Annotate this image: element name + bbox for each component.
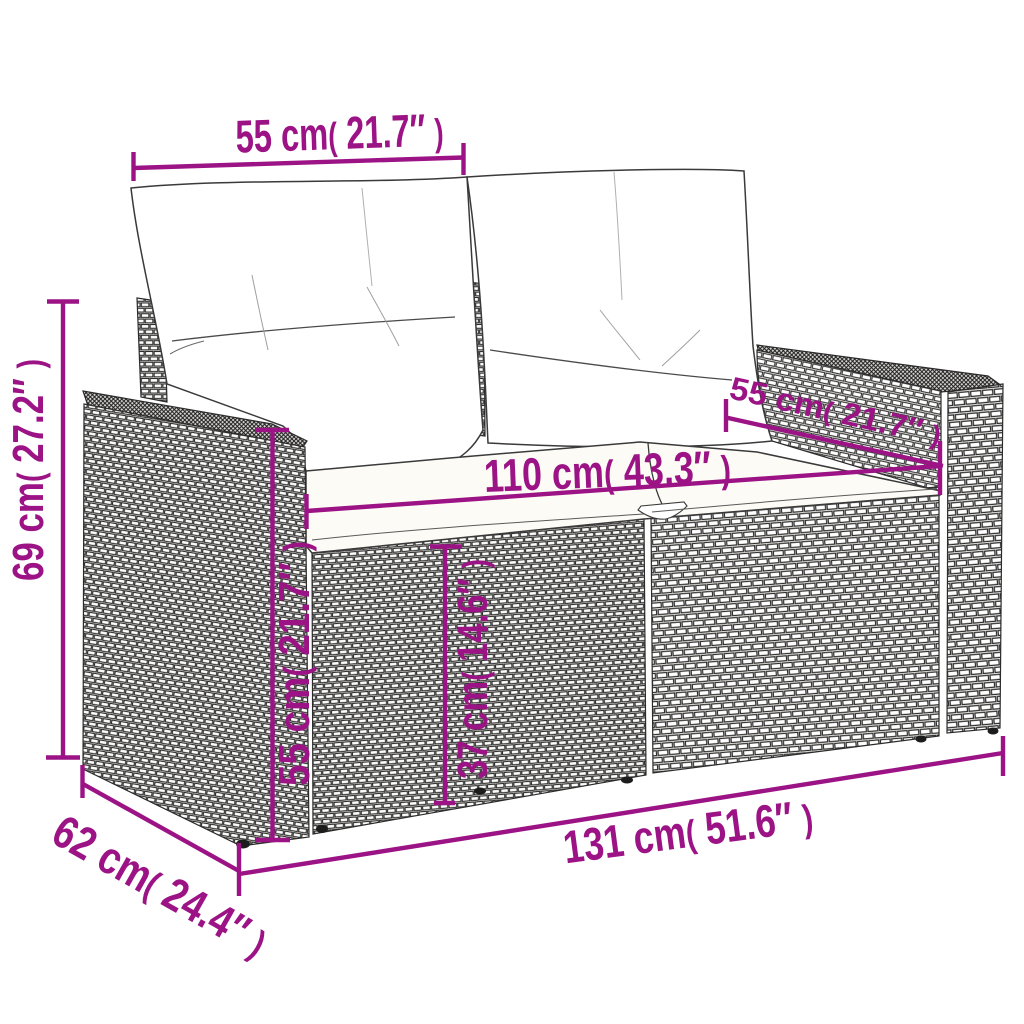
svg-text:55 cm( 21.7″ ): 55 cm( 21.7″ ) [270,541,319,786]
svg-text:37 cm( 14.6″ ): 37 cm( 14.6″ ) [449,559,497,779]
svg-text:55 cm( 21.7″ ): 55 cm( 21.7″ ) [235,103,445,162]
svg-text:69 cm( 27.2″ ): 69 cm( 27.2″ ) [4,359,53,581]
